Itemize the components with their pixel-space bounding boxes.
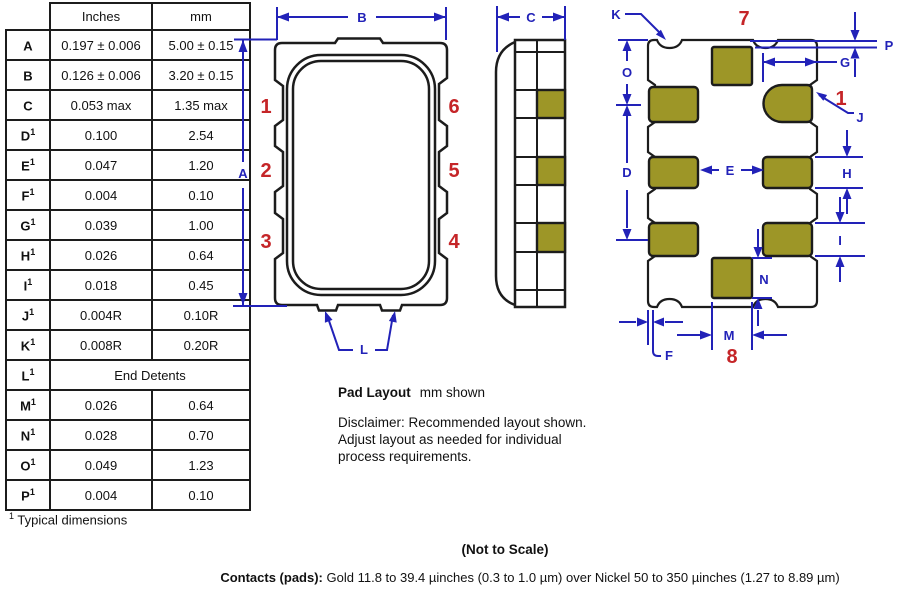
- arrow-icon: [700, 331, 712, 340]
- dim-label: L1: [6, 360, 50, 390]
- arrow-icon: [851, 30, 860, 41]
- pad-7: [712, 47, 752, 85]
- disclaimer-line: process requirements.: [338, 448, 586, 465]
- arrow-icon: [434, 13, 446, 22]
- dim-label: D1: [6, 120, 50, 150]
- pin-number-6: 6: [448, 96, 459, 118]
- dim-row-p: P1 0.004 0.10: [6, 480, 250, 510]
- inches-value: 0.053 max: [50, 90, 152, 120]
- dim-label: P1: [6, 480, 50, 510]
- inches-value: 0.197 ± 0.006: [50, 30, 152, 60]
- arrow-icon: [851, 48, 860, 59]
- dim-k-leader: [625, 14, 661, 34]
- arrow-icon: [623, 105, 632, 116]
- dim-label-e: E: [726, 163, 735, 178]
- inches-value: 0.018: [50, 270, 152, 300]
- dim-label: E1: [6, 150, 50, 180]
- dim-label: I1: [6, 270, 50, 300]
- inches-value: 0.100: [50, 120, 152, 150]
- arrow-icon: [623, 40, 632, 51]
- pad-number-7: 7: [738, 8, 749, 30]
- arrow-icon: [623, 94, 632, 105]
- contacts-label: Contacts (pads):: [220, 570, 323, 585]
- table-footnote: 1 Typical dimensions: [9, 511, 127, 527]
- contacts-note: Contacts (pads): Gold 11.8 to 39.4 µinch…: [150, 570, 905, 585]
- dim-row-h: H1 0.026 0.64: [6, 240, 250, 270]
- not-to-scale-note: (Not to Scale): [330, 542, 680, 557]
- inches-value: 0.026: [50, 240, 152, 270]
- arrow-icon: [637, 318, 648, 327]
- dim-label: C: [6, 90, 50, 120]
- pad-8: [712, 258, 752, 298]
- dim-label: F1: [6, 180, 50, 210]
- dim-label-c: C: [526, 10, 536, 25]
- col-header-inches: Inches: [50, 3, 152, 30]
- arrow-icon: [239, 40, 248, 52]
- pad-layout-drawing: K P O D G 1 J E H: [605, 0, 905, 375]
- mm-value: 0.10: [152, 480, 250, 510]
- dim-label-d: D: [622, 165, 631, 180]
- arrow-icon: [497, 13, 509, 22]
- inches-value: 0.026: [50, 390, 152, 420]
- side-pad: [537, 157, 565, 185]
- dim-label-a: A: [238, 166, 248, 181]
- dim-row-o: O1 0.049 1.23: [6, 450, 250, 480]
- inches-value: 0.049: [50, 450, 152, 480]
- dim-label: B: [6, 60, 50, 90]
- pad-4: [649, 223, 698, 256]
- table-header-row: Inches mm: [6, 3, 250, 30]
- front-view-drawing: B A L 1 6 2 5 3 4: [230, 0, 480, 375]
- inches-value: 0.126 ± 0.006: [50, 60, 152, 90]
- side-view-drawing: C: [480, 0, 605, 335]
- dim-row-a: A 0.197 ± 0.006 5.00 ± 0.15: [6, 30, 250, 60]
- dim-label-b: B: [357, 10, 366, 25]
- arrow-icon: [653, 318, 664, 327]
- inches-value: 0.004: [50, 180, 152, 210]
- dim-f-lines: [619, 310, 683, 356]
- arrow-icon: [843, 146, 852, 157]
- dim-label-o: O: [622, 65, 632, 80]
- pad-3: [649, 157, 698, 188]
- dim-label: G1: [6, 210, 50, 240]
- side-pad: [537, 90, 565, 118]
- arrow-icon: [277, 13, 289, 22]
- mm-value: 0.70: [152, 420, 250, 450]
- arrow-icon: [325, 311, 333, 323]
- pin-number-3: 3: [260, 231, 271, 253]
- dim-d-lines: [616, 116, 648, 240]
- dim-label-n: N: [759, 272, 768, 287]
- dim-label: N1: [6, 420, 50, 450]
- dim-row-l: L1 End Detents: [6, 360, 250, 390]
- dim-label-h: H: [842, 166, 851, 181]
- dim-row-b: B 0.126 ± 0.006 3.20 ± 0.15: [6, 60, 250, 90]
- inches-value: 0.008R: [50, 330, 152, 360]
- pad-5: [763, 223, 812, 256]
- pad-6: [763, 157, 812, 188]
- dim-label-m: M: [724, 328, 735, 343]
- table-corner-cell: [6, 3, 50, 30]
- arrow-icon: [836, 256, 845, 267]
- mm-value: 1.23: [152, 450, 250, 480]
- arrow-icon: [553, 13, 565, 22]
- dim-row-c: C 0.053 max 1.35 max: [6, 90, 250, 120]
- pad-layout-title-text: Pad Layout: [338, 385, 411, 400]
- arrow-icon: [752, 331, 764, 340]
- dim-label-g: G: [840, 55, 850, 70]
- dim-label: H1: [6, 240, 50, 270]
- dim-label: K1: [6, 330, 50, 360]
- datasheet-page: Inches mm A 0.197 ± 0.006 5.00 ± 0.15 B …: [0, 0, 905, 598]
- inches-value: 0.039: [50, 210, 152, 240]
- dim-label-j: J: [856, 110, 863, 125]
- dim-label: A: [6, 30, 50, 60]
- arrow-icon: [389, 311, 397, 323]
- disclaimer-line: Disclaimer: Recommended layout shown.: [338, 414, 586, 431]
- disclaimer-line: Adjust layout as needed for individual: [338, 431, 586, 448]
- inches-value: 0.004: [50, 480, 152, 510]
- pin-number-2: 2: [260, 160, 271, 182]
- dim-row-n: N1 0.028 0.70: [6, 420, 250, 450]
- dim-label-p: P: [885, 38, 894, 53]
- package-outline: [275, 39, 447, 311]
- mm-value: 0.64: [152, 390, 250, 420]
- dim-label-l: L: [360, 342, 368, 357]
- dim-row-f: F1 0.004 0.10: [6, 180, 250, 210]
- dim-label: O1: [6, 450, 50, 480]
- dim-label: M1: [6, 390, 50, 420]
- dim-row-g: G1 0.039 1.00: [6, 210, 250, 240]
- inches-value: 0.047: [50, 150, 152, 180]
- pad-layout-subtitle: mm shown: [420, 385, 485, 400]
- dim-row-d: D1 0.100 2.54: [6, 120, 250, 150]
- pin-number-5: 5: [448, 160, 459, 182]
- pad-2: [649, 87, 698, 122]
- dim-label-i: I: [838, 233, 842, 248]
- inches-value: 0.028: [50, 420, 152, 450]
- side-pad: [537, 223, 565, 252]
- dim-row-e: E1 0.047 1.20: [6, 150, 250, 180]
- dim-row-m: M1 0.026 0.64: [6, 390, 250, 420]
- pin-number-4: 4: [448, 231, 460, 253]
- lid-profile: [496, 42, 515, 305]
- pad-1-rounded: [764, 85, 813, 122]
- dim-row-j: J1 0.004R 0.10R: [6, 300, 250, 330]
- pin-number-1: 1: [260, 96, 271, 118]
- arrow-icon: [843, 188, 852, 199]
- dim-row-k: K1 0.008R 0.20R: [6, 330, 250, 360]
- pad-layout-title: Pad Layoutmm shown: [338, 385, 485, 400]
- arrow-icon: [239, 293, 248, 305]
- arrow-icon: [836, 212, 845, 223]
- dim-label-k: K: [611, 7, 621, 22]
- dim-label-f: F: [665, 348, 673, 363]
- inches-value: 0.004R: [50, 300, 152, 330]
- pad-number-8: 8: [726, 346, 737, 368]
- dim-row-i: I1 0.018 0.45: [6, 270, 250, 300]
- contacts-text: Gold 11.8 to 39.4 µinches (0.3 to 1.0 µm…: [327, 570, 840, 585]
- arrow-icon: [623, 229, 632, 240]
- dim-label: J1: [6, 300, 50, 330]
- end-detents-cell: End Detents: [50, 360, 250, 390]
- disclaimer-text: Disclaimer: Recommended layout shown. Ad…: [338, 414, 586, 465]
- dimensions-table: Inches mm A 0.197 ± 0.006 5.00 ± 0.15 B …: [5, 2, 251, 511]
